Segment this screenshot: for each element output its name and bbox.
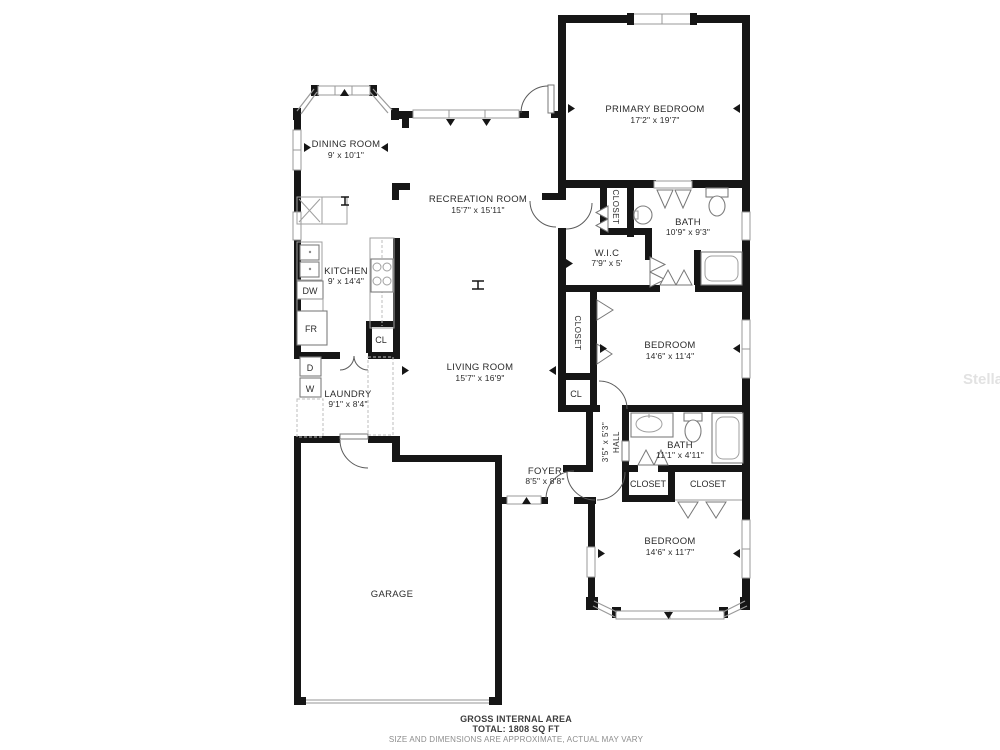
vestibule-chevrons — [660, 270, 692, 285]
primary-dims: 17'2" x 19'7" — [630, 115, 679, 125]
closet-right-label: CLOSET — [690, 479, 727, 489]
footer-area-title: GROSS INTERNAL AREA — [460, 714, 572, 724]
bedroom2-dims: 14'6" x 11'4" — [646, 351, 695, 361]
garage-entry-leaf — [340, 434, 368, 439]
wic-dims: 7'9" x 5' — [591, 258, 622, 268]
garage-entry-arc — [340, 440, 368, 468]
closet-right-bifold — [678, 502, 726, 518]
footer-total: TOTAL: 1808 SQ FT — [472, 724, 559, 734]
laundry-dims: 9'1" x 8'4" — [328, 399, 367, 409]
bedroom3-door-arc — [597, 472, 625, 500]
kitchen-cl-label: CL — [375, 335, 387, 345]
bedroom3-label: BEDROOM — [644, 536, 695, 547]
stellar-watermark: Stellar — [963, 371, 1000, 388]
hall-cl-label: CL — [570, 389, 582, 399]
primary-label: PRIMARY BEDROOM — [605, 104, 704, 115]
hall-closet-label: CLOSET — [573, 315, 582, 350]
primary-bath-slider — [654, 181, 692, 188]
kitchen-dims: 9' x 14'4" — [328, 276, 364, 286]
recreation-window — [413, 110, 519, 118]
hall-label: HALL — [612, 431, 621, 453]
hall-closet-bifold — [597, 300, 613, 364]
toilet1-bowl — [709, 196, 725, 216]
bath2-pocket-door — [622, 441, 629, 461]
dining-dims: 9' x 10'1" — [328, 150, 364, 160]
bath1-tub — [701, 252, 742, 285]
dryer-label: D — [307, 363, 314, 373]
closet-left-label: CLOSET — [630, 479, 667, 489]
hall-dims: 3'5" x 5'3" — [601, 422, 610, 462]
floor-plan-drawing: DINING ROOM 9' x 10'1" RECREATION ROOM 1… — [0, 0, 1000, 750]
foyer-hall-arc — [567, 472, 595, 500]
bedroom2-label: BEDROOM — [644, 340, 695, 351]
garage-door — [306, 700, 489, 703]
footer: GROSS INTERNAL AREA TOTAL: 1808 SQ FT SI… — [389, 714, 644, 744]
floor-outlet-marker — [472, 281, 484, 289]
bath1-dims: 10'9" x 9'3" — [666, 227, 710, 237]
bath1-window — [742, 212, 750, 240]
suite-hall-door-arc — [566, 203, 592, 229]
living-hall-door-arc — [530, 201, 556, 227]
recreation-label: RECREATION ROOM — [429, 194, 527, 205]
floor-plan-page: DINING ROOM 9' x 10'1" RECREATION ROOM 1… — [0, 0, 1000, 750]
living-dims: 15'7" x 16'9" — [455, 373, 504, 383]
bedroom3-dims: 14'6" x 11'7" — [646, 547, 695, 557]
bath1-sink — [634, 206, 652, 224]
bath2-dims: 11'1" x 4'11" — [656, 450, 704, 460]
patio-door-arc — [521, 86, 548, 113]
washer-label: W — [306, 384, 315, 394]
primary-bath-slider-chevrons — [657, 190, 691, 208]
living-label: LIVING ROOM — [447, 362, 514, 373]
patio-door-leaf — [548, 85, 554, 113]
toilet2-bowl — [685, 420, 701, 442]
footer-disclaimer: SIZE AND DIMENSIONS ARE APPROXIMATE, ACT… — [389, 735, 644, 744]
laundry-door-arcs — [340, 356, 368, 370]
counter-end-marker — [341, 197, 349, 205]
dining-label: DINING ROOM — [312, 139, 381, 150]
foyer-dims: 8'5" x 8'8" — [525, 476, 564, 486]
primary-closet-label: CLOSET — [611, 189, 620, 224]
dishwasher-label: DW — [303, 286, 318, 296]
fridge-label: FR — [305, 324, 317, 334]
garage-label: GARAGE — [371, 589, 413, 600]
bedroom2-door-arc — [599, 381, 627, 409]
recreation-dims: 15'7" x 15'11" — [451, 205, 505, 215]
bedroom3-left-window — [587, 547, 595, 577]
